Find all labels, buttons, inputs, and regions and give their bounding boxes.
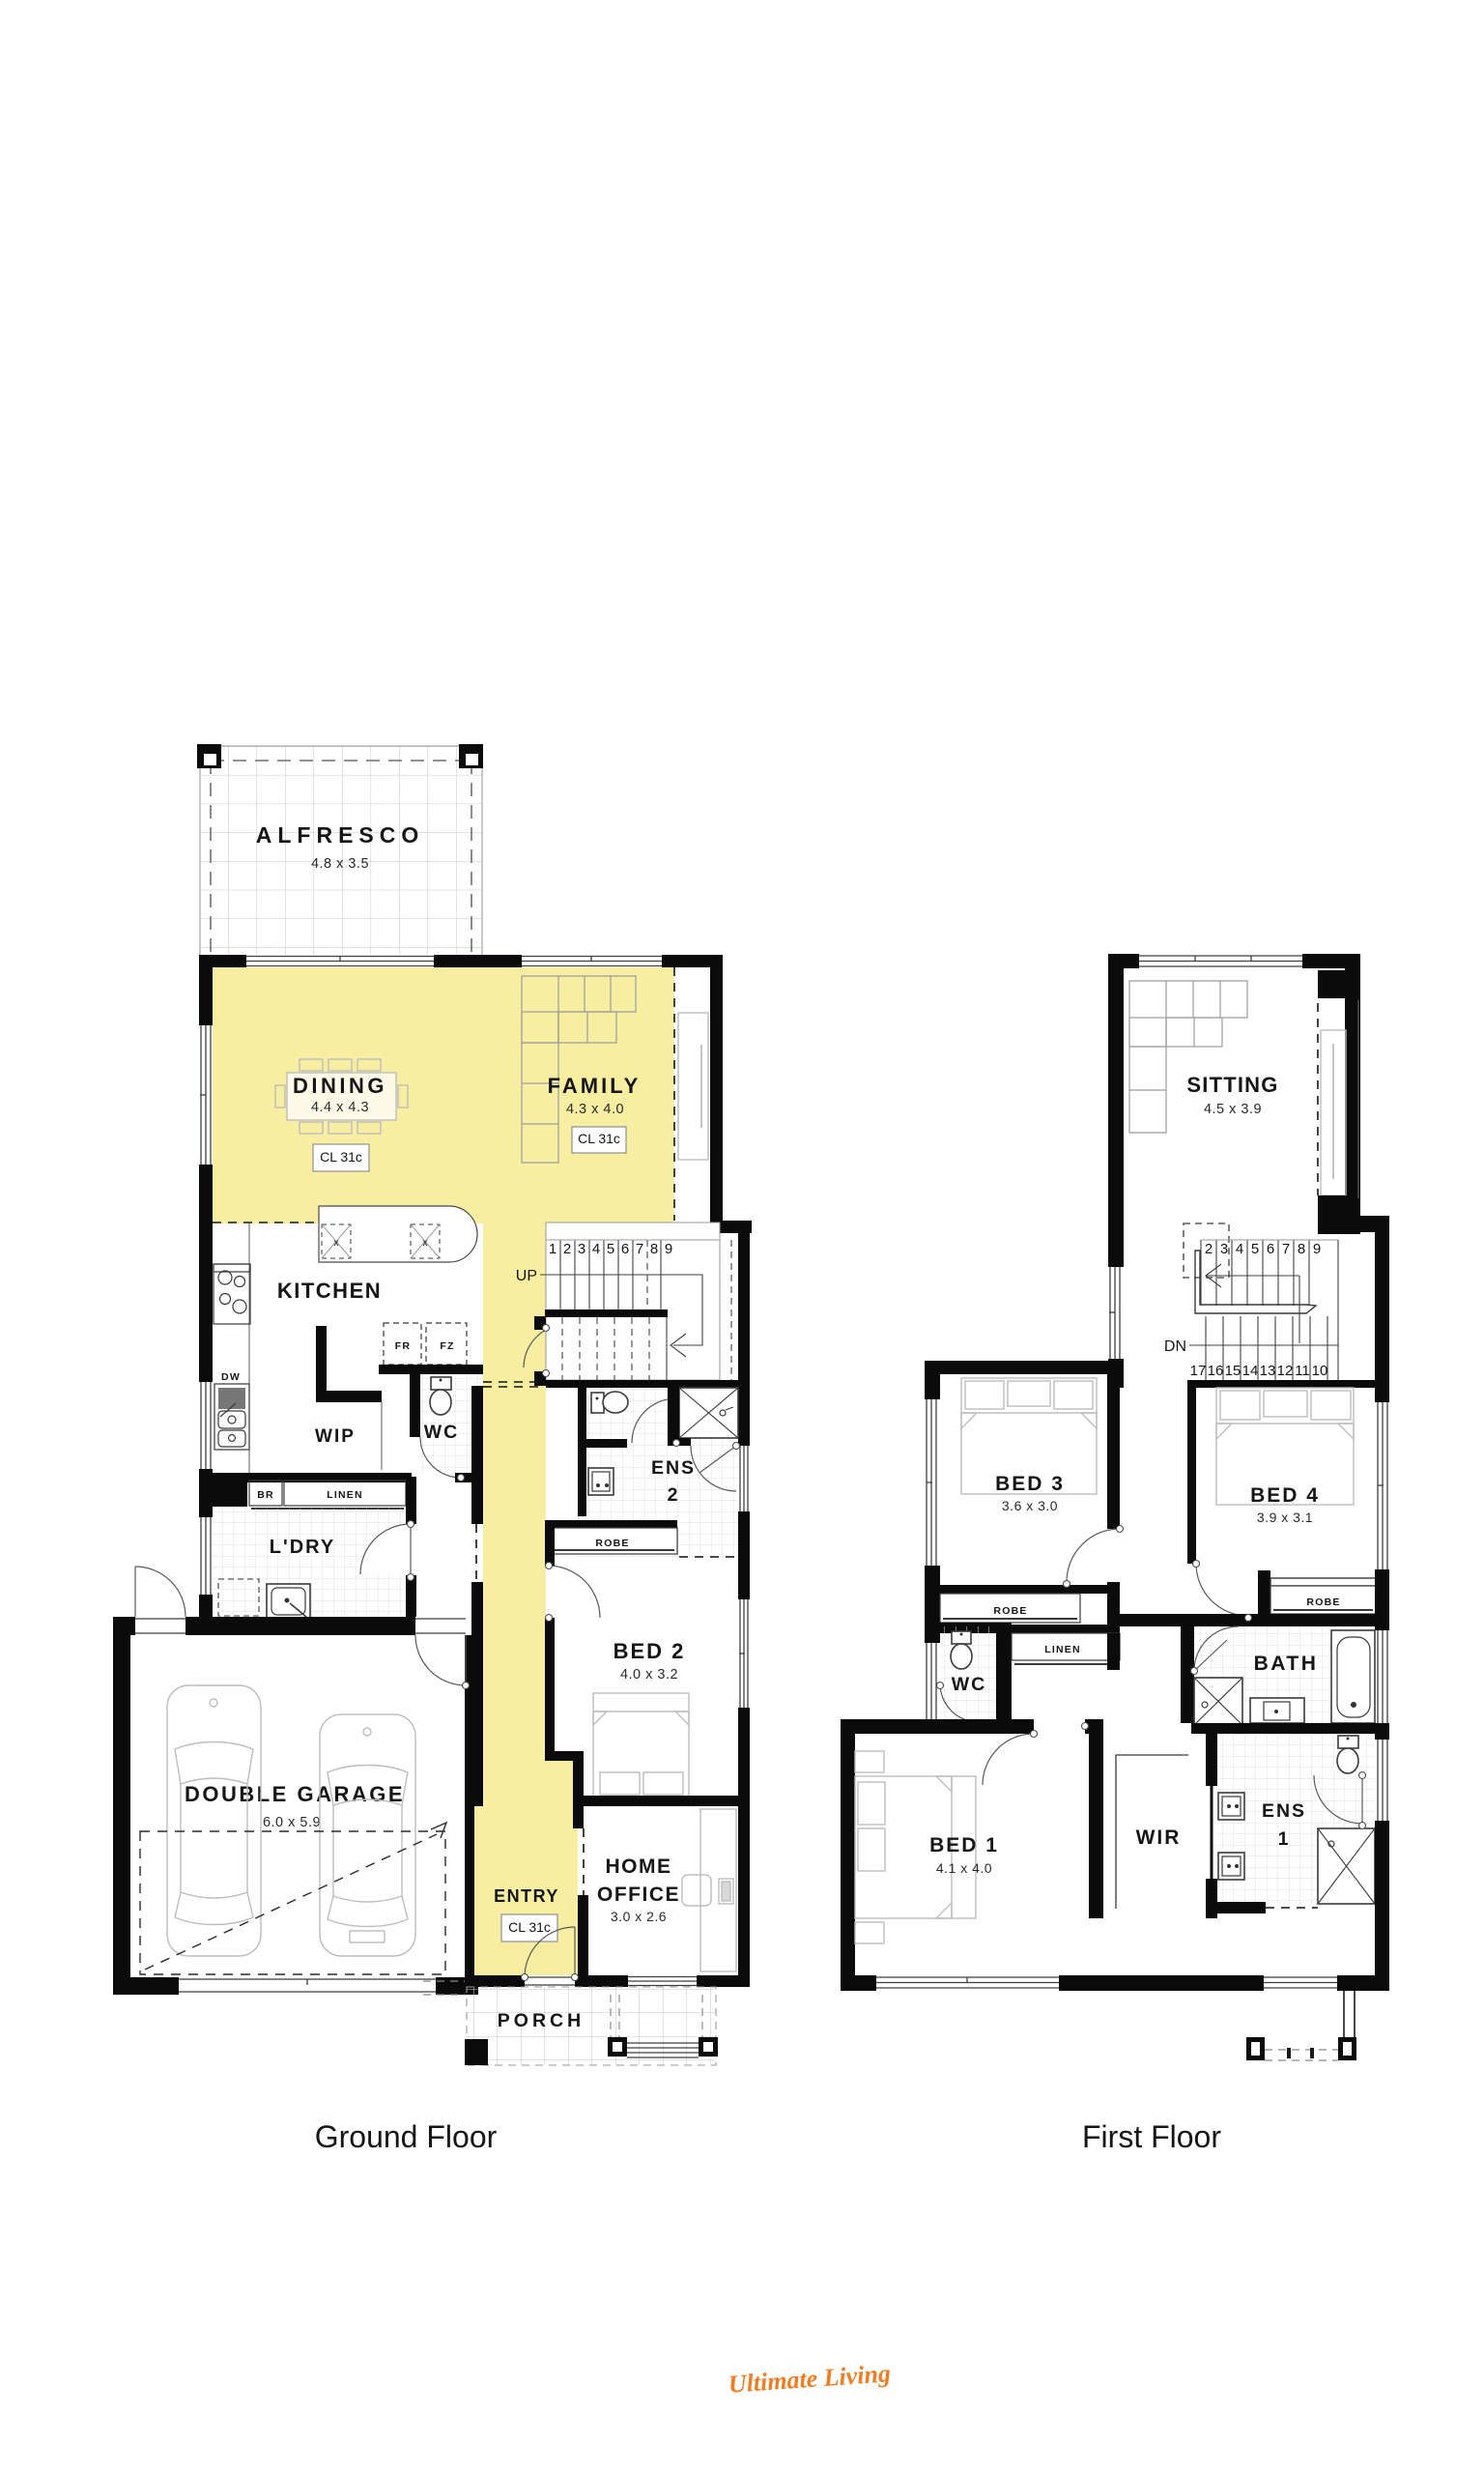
svg-text:DW: DW: [221, 1371, 241, 1383]
svg-text:BED 3: BED 3: [995, 1473, 1065, 1495]
svg-text:8: 8: [650, 1241, 658, 1257]
svg-text:17: 17: [1190, 1363, 1207, 1379]
svg-text:9: 9: [1313, 1241, 1321, 1257]
svg-text:ROBE: ROBE: [595, 1538, 629, 1549]
svg-text:4: 4: [1236, 1241, 1243, 1257]
svg-text:6: 6: [621, 1241, 629, 1257]
svg-text:WC: WC: [424, 1422, 460, 1443]
svg-text:FZ: FZ: [440, 1340, 454, 1352]
svg-text:2: 2: [668, 1484, 680, 1506]
svg-text:4.8 x 3.5: 4.8 x 3.5: [311, 856, 369, 872]
svg-text:9: 9: [665, 1241, 672, 1257]
svg-text:DN: DN: [1164, 1338, 1186, 1355]
svg-text:16: 16: [1208, 1363, 1224, 1379]
svg-text:L'DRY: L'DRY: [270, 1537, 335, 1558]
svg-text:PORCH: PORCH: [498, 2010, 585, 2031]
svg-text:3.9 x 3.1: 3.9 x 3.1: [1257, 1510, 1313, 1525]
svg-text:1: 1: [1278, 1828, 1291, 1850]
svg-text:CL 31c: CL 31c: [578, 1131, 620, 1146]
svg-text:CL 31c: CL 31c: [508, 1919, 551, 1935]
svg-text:5: 5: [607, 1241, 614, 1257]
svg-text:ALFRESCO: ALFRESCO: [256, 822, 425, 848]
svg-text:4.5 x 3.9: 4.5 x 3.9: [1204, 1102, 1262, 1117]
svg-text:FR: FR: [395, 1340, 411, 1352]
svg-text:WIP: WIP: [315, 1426, 356, 1447]
svg-text:x: x: [334, 1238, 339, 1249]
svg-text:3.6 x 3.0: 3.6 x 3.0: [1002, 1498, 1058, 1513]
svg-text:6.0 x 5.9: 6.0 x 5.9: [263, 1815, 321, 1830]
svg-text:WC: WC: [952, 1674, 987, 1695]
svg-text:7: 7: [636, 1241, 643, 1257]
svg-text:3: 3: [578, 1241, 585, 1257]
svg-text:SITTING: SITTING: [1186, 1073, 1278, 1097]
svg-text:3: 3: [1220, 1241, 1228, 1257]
svg-text:BED 1: BED 1: [929, 1834, 999, 1856]
svg-text:6: 6: [1267, 1241, 1274, 1257]
svg-text:BR: BR: [257, 1489, 274, 1501]
svg-text:OFFICE: OFFICE: [597, 1884, 680, 1906]
svg-text:Ground Floor: Ground Floor: [315, 2119, 498, 2154]
svg-text:BATH: BATH: [1254, 1653, 1319, 1675]
svg-text:BED 4: BED 4: [1250, 1484, 1320, 1507]
svg-text:LINEN: LINEN: [1044, 1644, 1081, 1655]
svg-text:11: 11: [1295, 1363, 1310, 1379]
svg-text:4.0 x 3.2: 4.0 x 3.2: [620, 1667, 678, 1683]
svg-text:3.0 x 2.6: 3.0 x 2.6: [611, 1909, 667, 1924]
svg-text:WIR: WIR: [1136, 1827, 1182, 1849]
svg-text:KITCHEN: KITCHEN: [277, 1279, 382, 1303]
svg-text:UP: UP: [516, 1268, 537, 1284]
svg-text:8: 8: [1298, 1241, 1305, 1257]
svg-text:BED 2: BED 2: [614, 1639, 686, 1663]
svg-text:ROBE: ROBE: [1306, 1597, 1340, 1608]
svg-text:HOME: HOME: [606, 1855, 672, 1878]
svg-text:7: 7: [1282, 1241, 1290, 1257]
svg-text:ENS: ENS: [1262, 1800, 1306, 1822]
svg-text:2: 2: [1205, 1241, 1213, 1257]
svg-text:ROBE: ROBE: [993, 1605, 1027, 1617]
svg-text:2: 2: [563, 1241, 571, 1257]
svg-text:13: 13: [1260, 1363, 1276, 1379]
svg-text:ENTRY: ENTRY: [494, 1886, 559, 1906]
svg-text:4.3 x 4.0: 4.3 x 4.0: [566, 1102, 624, 1117]
svg-text:5: 5: [1251, 1241, 1259, 1257]
svg-text:First Floor: First Floor: [1082, 2119, 1221, 2154]
svg-text:4: 4: [592, 1241, 600, 1257]
svg-text:CL 31c: CL 31c: [320, 1149, 362, 1165]
svg-text:15: 15: [1225, 1363, 1241, 1379]
svg-text:12: 12: [1277, 1363, 1294, 1379]
svg-text:4.1 x 4.0: 4.1 x 4.0: [936, 1860, 992, 1876]
svg-text:DOUBLE GARAGE: DOUBLE GARAGE: [185, 1782, 405, 1806]
svg-text:FAMILY: FAMILY: [548, 1074, 642, 1098]
svg-text:LINEN: LINEN: [327, 1489, 363, 1501]
svg-text:4.4 x 4.3: 4.4 x 4.3: [311, 1100, 369, 1115]
svg-text:x: x: [423, 1238, 428, 1249]
svg-text:ENS: ENS: [651, 1457, 696, 1479]
svg-text:DINING: DINING: [293, 1074, 387, 1098]
svg-text:14: 14: [1242, 1363, 1259, 1379]
svg-text:10: 10: [1312, 1363, 1328, 1379]
svg-text:1: 1: [549, 1241, 556, 1257]
